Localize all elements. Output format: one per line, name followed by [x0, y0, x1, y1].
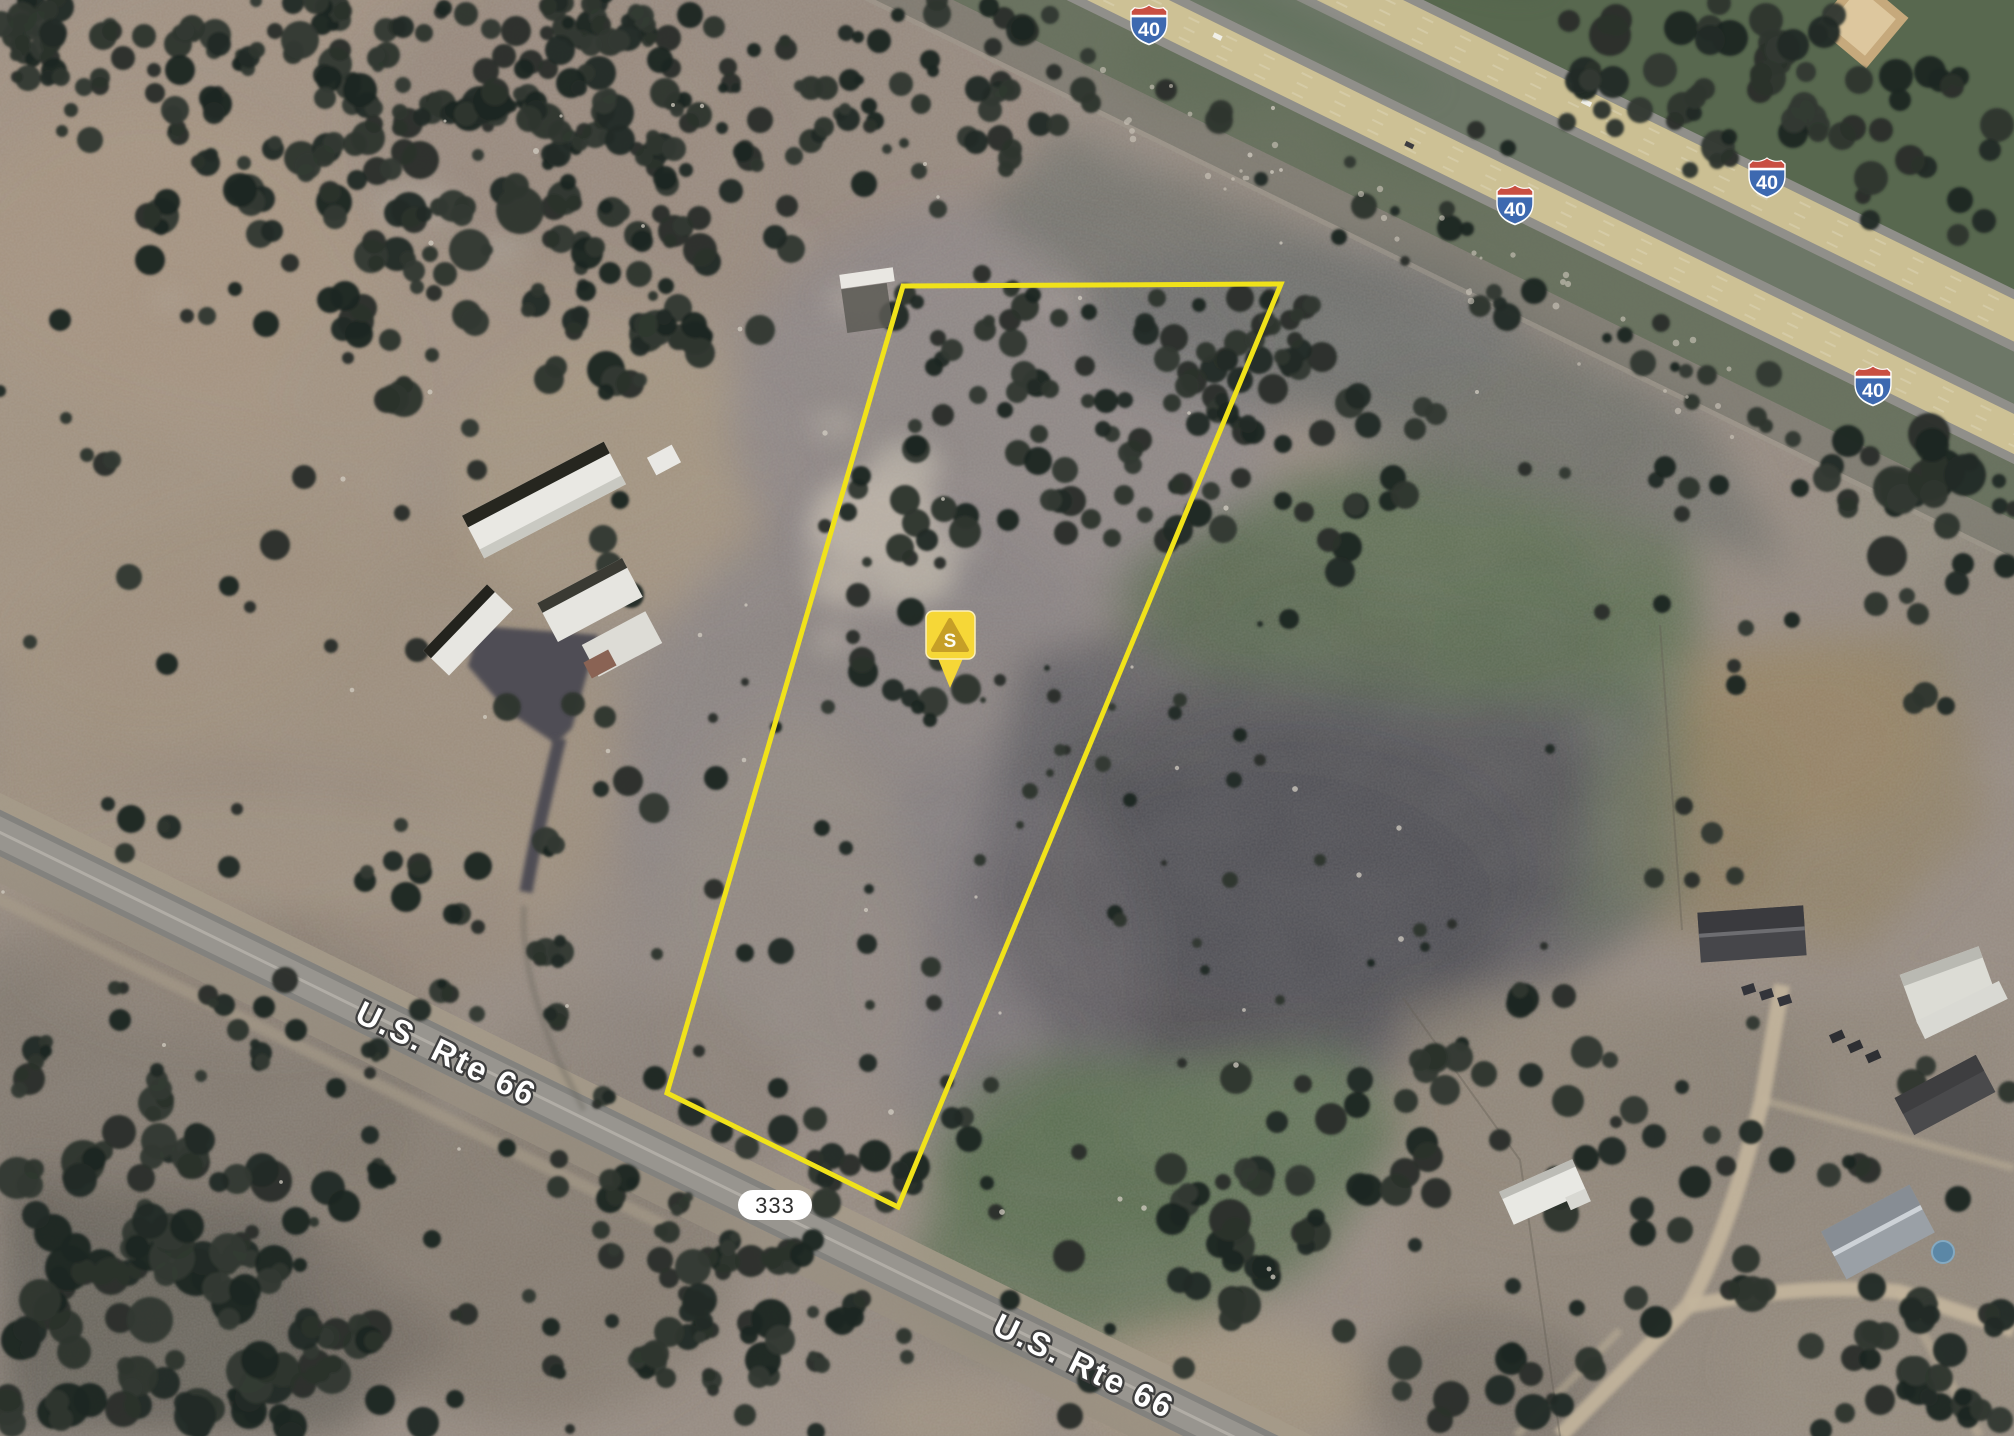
- svg-text:40: 40: [1862, 380, 1884, 402]
- svg-text:333: 333: [755, 1193, 795, 1218]
- svg-text:40: 40: [1756, 172, 1778, 194]
- svg-text:S: S: [944, 631, 957, 652]
- svg-text:40: 40: [1138, 19, 1160, 41]
- svg-text:40: 40: [1504, 199, 1526, 221]
